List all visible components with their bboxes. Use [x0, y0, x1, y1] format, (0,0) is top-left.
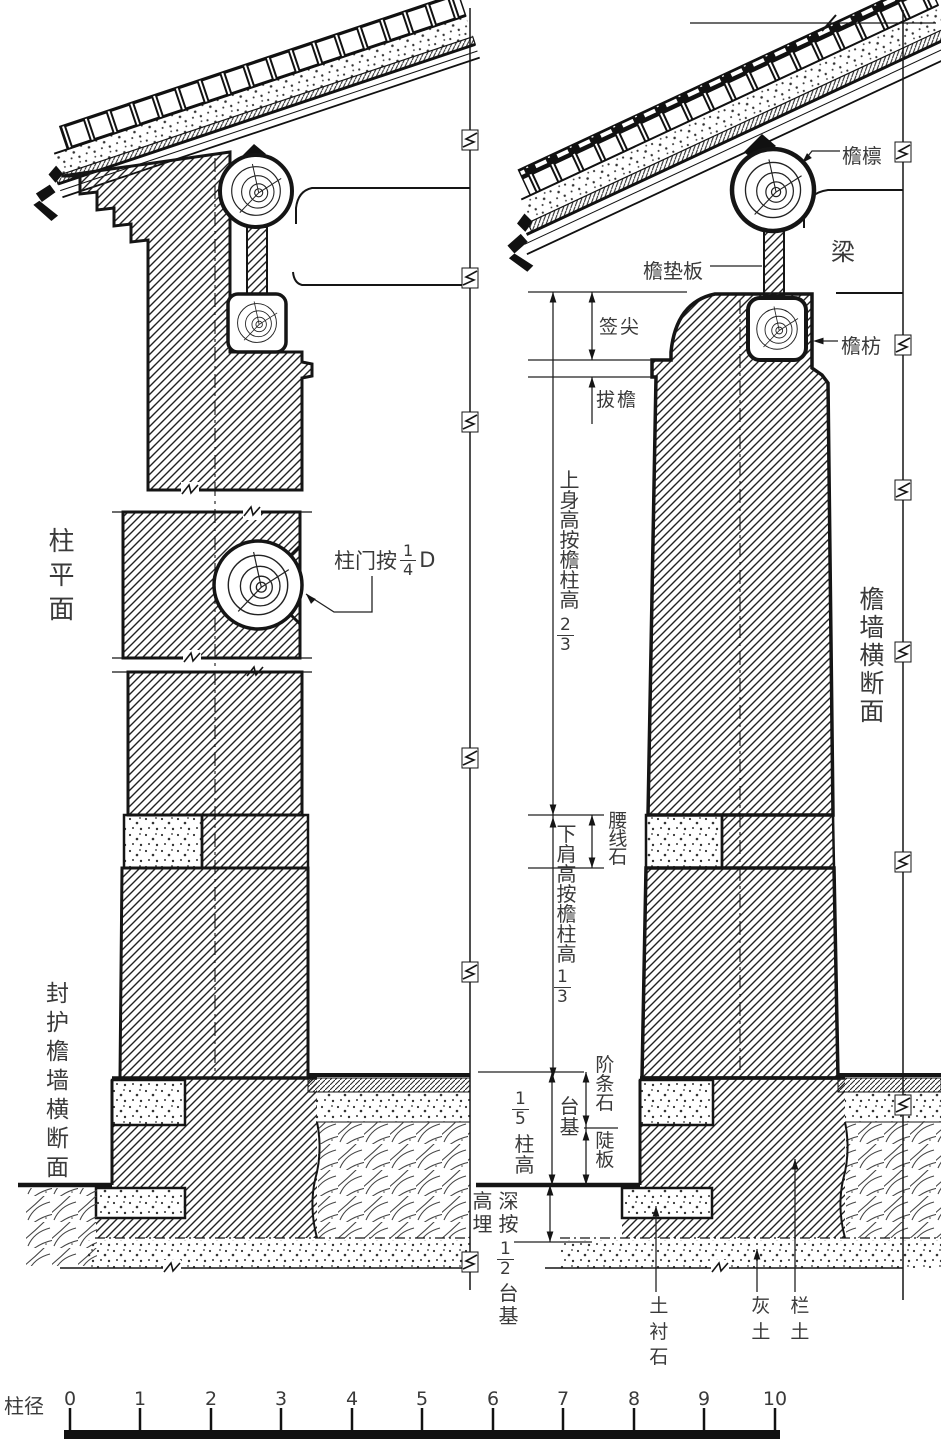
left-waist-stone [124, 815, 202, 868]
scale-tick-0: 0 [55, 1388, 85, 1410]
left-eave-board [247, 227, 267, 295]
left-eave-fang-log [228, 294, 286, 352]
scale-tick-6: 6 [478, 1388, 508, 1410]
right-earth-lining-stone [622, 1188, 712, 1218]
label-column-height: 柱高 [511, 1134, 538, 1176]
label-lower-shoulder-fraction: 13 [554, 968, 571, 1006]
label-eave-fang: 檐枋 [841, 330, 881, 359]
label-bayan: 拔檐 [596, 385, 638, 412]
label-sealed-eave-wall-section: 封护檐墙横断面 [42, 980, 73, 1183]
label-step-stone: 阶条石 [592, 1056, 618, 1113]
label-retaining-earth: 栏土 [787, 1294, 813, 1345]
label-burial-platform: 台基 [495, 1282, 522, 1328]
label-column-door: 柱门按14D [334, 542, 435, 578]
label-burial-col-left: 高埋 [469, 1190, 496, 1236]
right-eave-board [764, 228, 784, 296]
label-one-fifth-fraction: 15 [512, 1090, 529, 1128]
scale-tick-4: 4 [337, 1388, 367, 1410]
scale-tick-2: 2 [196, 1388, 226, 1410]
label-burial-col-right: 深按 [495, 1190, 522, 1236]
label-eave-wall-section: 檐墙横断面 [855, 586, 889, 726]
label-upper-body-fraction: 23 [557, 616, 574, 654]
right-roof [477, 0, 941, 276]
label-burial-fraction: 12 [497, 1240, 514, 1278]
beam-outline [804, 190, 903, 228]
scale-bar [64, 1408, 780, 1439]
label-lime-earth: 灰土 [748, 1294, 774, 1345]
right-eave-purlin-log [732, 149, 814, 231]
left-earth-lining-stone [96, 1188, 185, 1218]
scale-tick-3: 3 [266, 1388, 296, 1410]
left-step-stone [112, 1080, 185, 1125]
column-plan-log [214, 541, 302, 629]
right-waist-stone [646, 815, 722, 868]
label-riser-slab: 陡板 [592, 1132, 618, 1170]
scale-tick-8: 8 [619, 1388, 649, 1410]
label-earth-lining-stone: 土衬石 [646, 1294, 672, 1371]
left-wall-section [18, 144, 470, 1276]
left-lower-wall [120, 868, 308, 1078]
label-qianjian: 签尖 [599, 312, 641, 339]
label-eave-purlin: 檐檩 [842, 140, 882, 169]
scale-tick-9: 9 [689, 1388, 719, 1410]
scale-tick-5: 5 [407, 1388, 437, 1410]
left-eave-purlin-log [220, 155, 292, 227]
label-upper-body-height: 上身高按檐柱高 [556, 470, 583, 610]
label-column-plan: 柱平面 [44, 526, 79, 627]
scale-tick-10: 10 [760, 1388, 790, 1410]
label-waist-stone: 腰线石 [605, 812, 631, 866]
right-step-stone [640, 1080, 713, 1125]
scale-label: 柱径 [4, 1390, 44, 1419]
label-lower-shoulder-height: 下肩高按檐柱高 [553, 824, 580, 964]
label-platform: 台基 [556, 1096, 583, 1138]
scale-tick-1: 1 [125, 1388, 155, 1410]
label-beam: 梁 [831, 232, 855, 267]
architectural-diagram: 柱平面 柱门按14D 封护檐墙横断面 签尖 拔檐 上身高按檐柱高 23 腰线石 … [0, 0, 941, 1448]
label-eave-board: 檐垫板 [643, 255, 703, 284]
scale-tick-7: 7 [548, 1388, 578, 1410]
